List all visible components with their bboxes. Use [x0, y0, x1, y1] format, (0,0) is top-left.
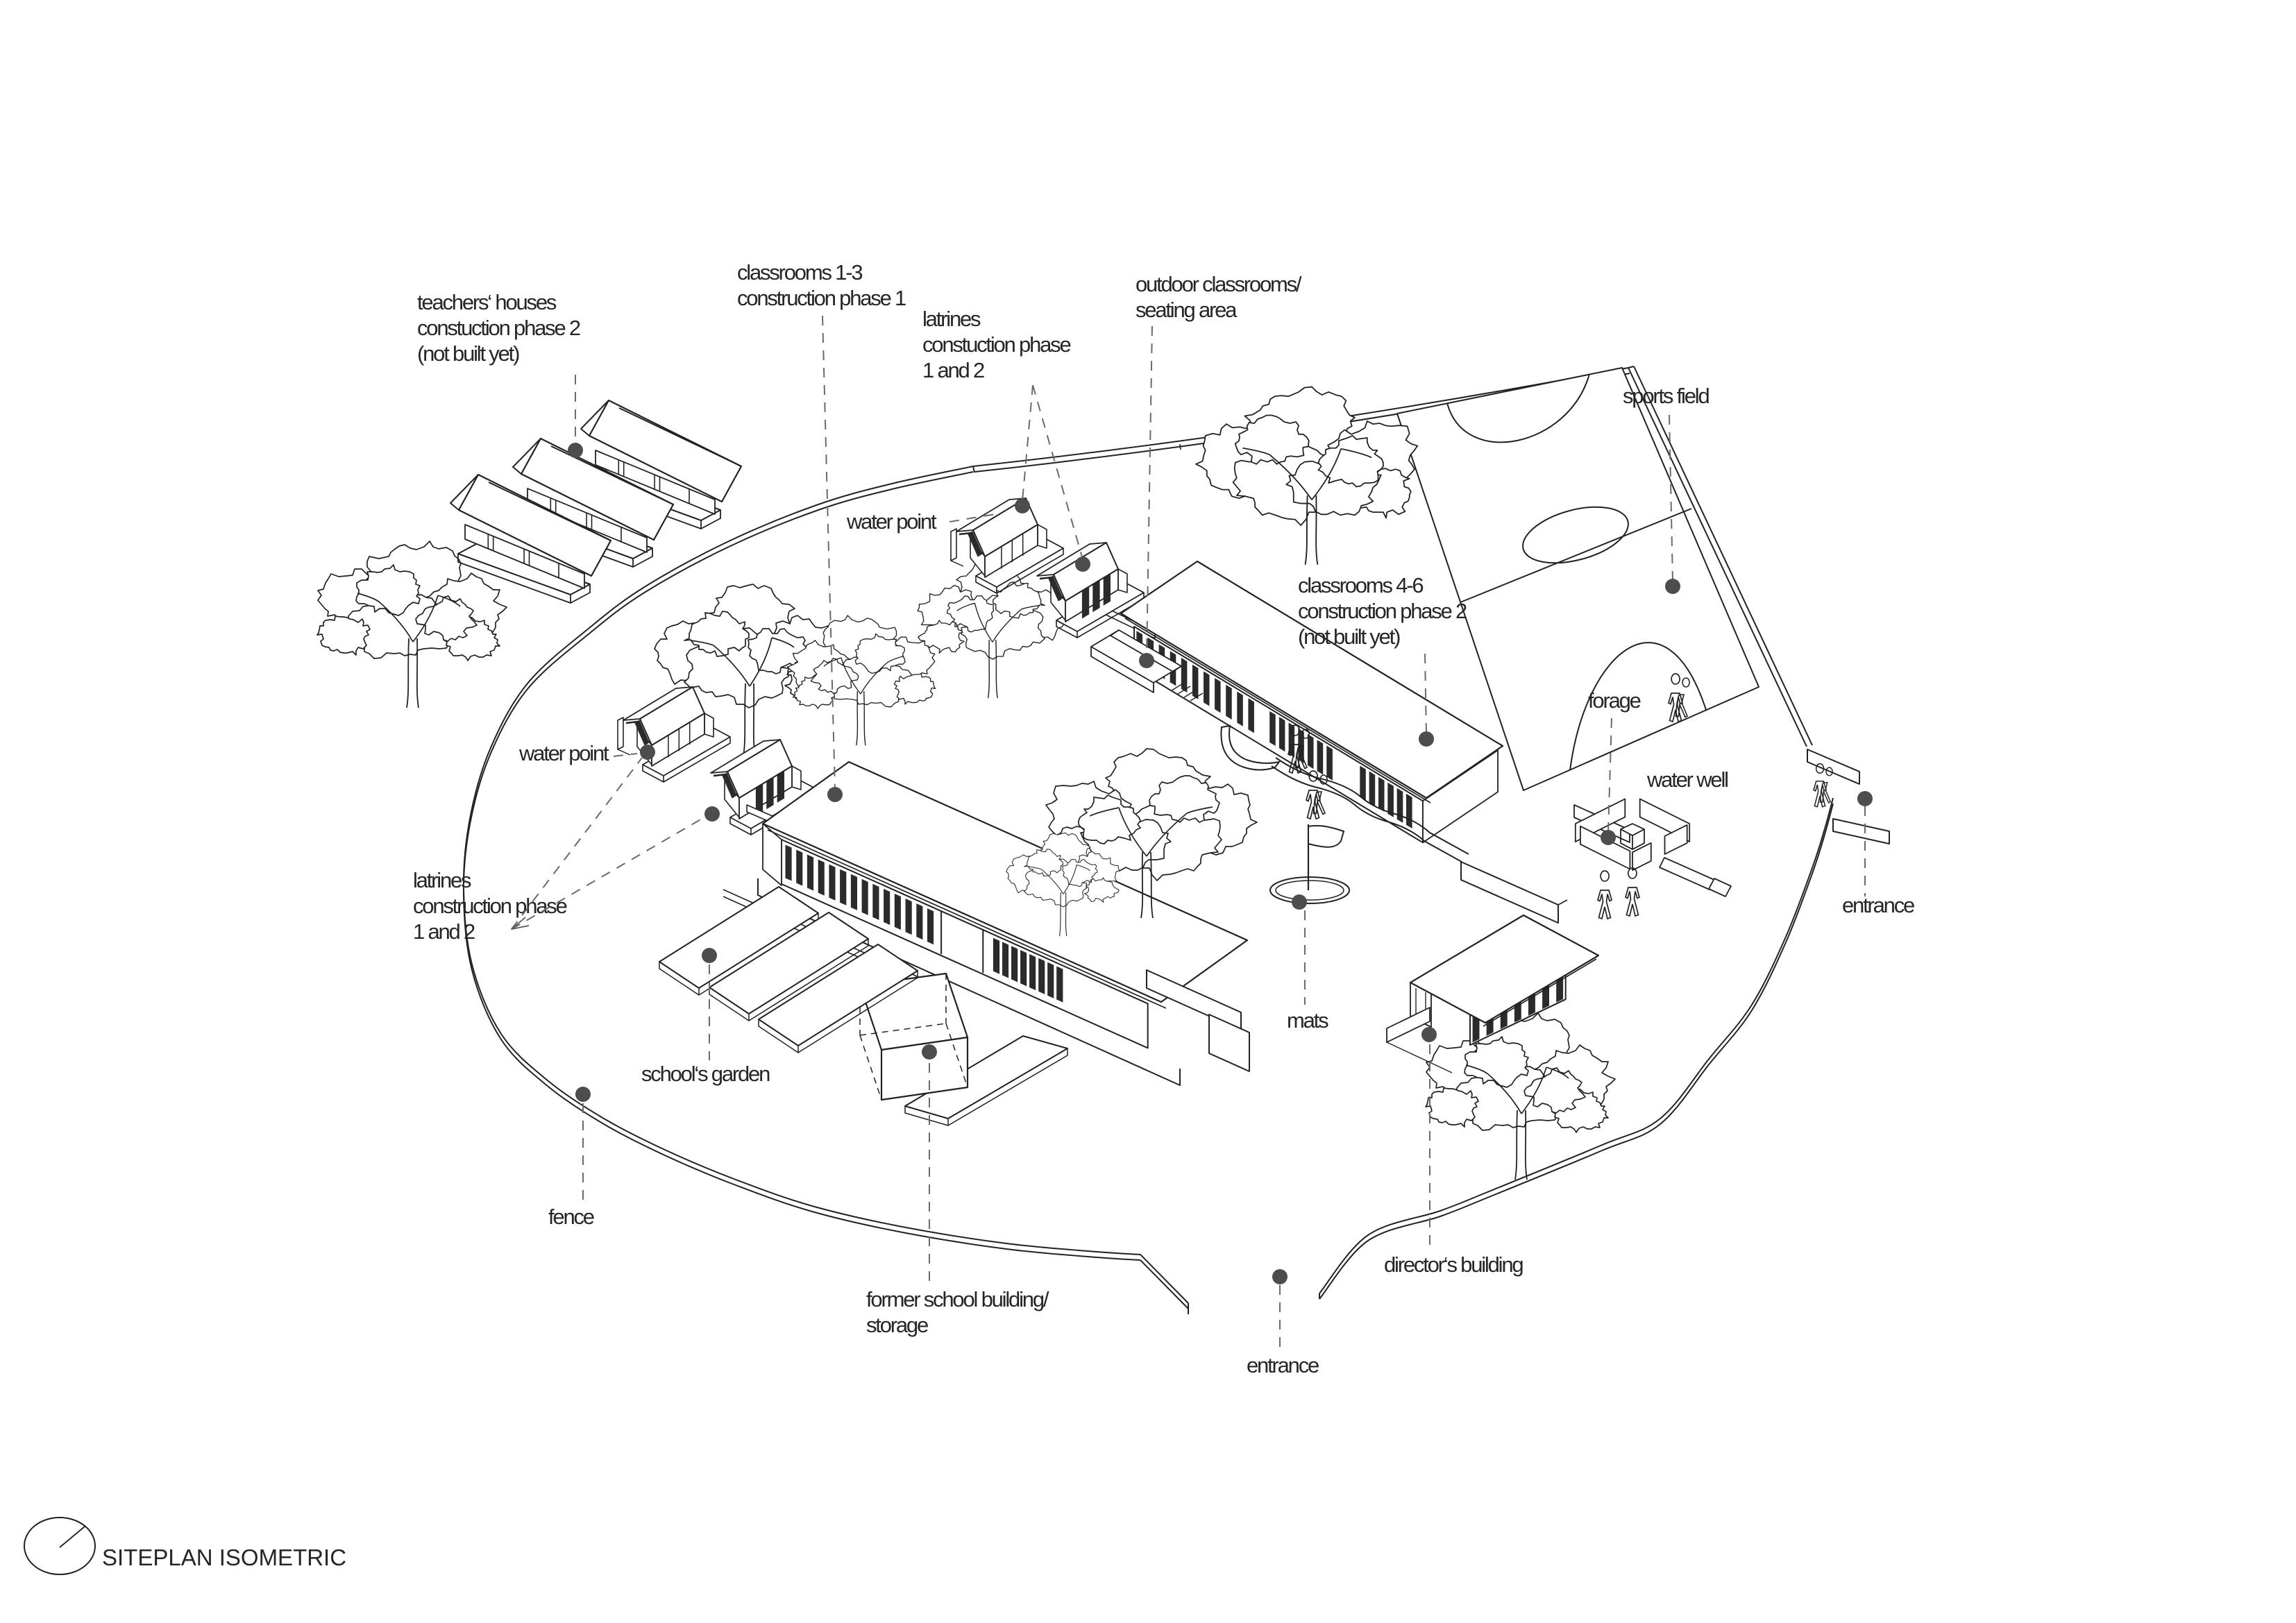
- svg-text:construction phase 2: construction phase 2: [1298, 599, 1467, 623]
- svg-text:latrines: latrines: [413, 868, 471, 892]
- svg-text:SITEPLAN ISOMETRIC: SITEPLAN ISOMETRIC: [102, 1545, 346, 1570]
- svg-text:entrance: entrance: [1842, 893, 1914, 917]
- svg-text:latrines: latrines: [922, 307, 981, 331]
- svg-text:fence: fence: [548, 1205, 594, 1229]
- svg-text:water point: water point: [518, 741, 609, 765]
- svg-text:1 and 2: 1 and 2: [922, 358, 984, 382]
- svg-text:1 and 2: 1 and 2: [413, 919, 475, 944]
- svg-text:classrooms 1-3: classrooms 1-3: [737, 260, 862, 284]
- svg-text:classrooms 4-6: classrooms 4-6: [1298, 573, 1423, 597]
- svg-text:mats: mats: [1287, 1008, 1328, 1033]
- svg-text:school‘s garden: school‘s garden: [641, 1062, 770, 1086]
- svg-text:construction phase: construction phase: [413, 894, 567, 918]
- svg-text:water point: water point: [846, 509, 937, 534]
- svg-text:constuction phase: constuction phase: [922, 332, 1070, 357]
- svg-text:outdoor classrooms/: outdoor classrooms/: [1136, 272, 1302, 296]
- svg-text:storage: storage: [866, 1313, 928, 1337]
- svg-text:director‘s building: director‘s building: [1384, 1252, 1523, 1277]
- svg-text:construction phase 1: construction phase 1: [737, 286, 906, 310]
- svg-text:teachers‘ houses: teachers‘ houses: [417, 290, 557, 314]
- svg-text:sports field: sports field: [1623, 384, 1709, 408]
- svg-text:(not built yet): (not built yet): [1298, 624, 1400, 649]
- svg-text:water well: water well: [1646, 767, 1728, 792]
- svg-text:(not built yet): (not built yet): [417, 341, 519, 366]
- svg-text:entrance: entrance: [1247, 1353, 1319, 1377]
- svg-text:constuction phase 2: constuction phase 2: [417, 316, 580, 340]
- svg-text:forage: forage: [1588, 688, 1641, 713]
- svg-text:seating area: seating area: [1136, 298, 1238, 322]
- svg-text:former school building/: former school building/: [866, 1287, 1049, 1311]
